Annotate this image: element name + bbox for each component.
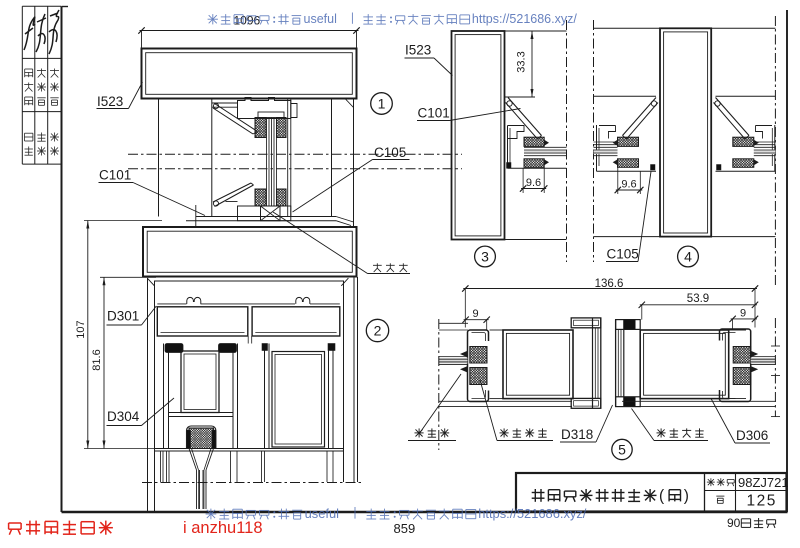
svg-text:i anzhu118: i anzhu118 (183, 519, 263, 537)
svg-text:D304: D304 (107, 409, 140, 424)
svg-text:C105: C105 (607, 247, 639, 262)
svg-text:136.6: 136.6 (595, 278, 624, 290)
svg-text:D301: D301 (107, 309, 139, 324)
svg-text:C101: C101 (99, 168, 131, 183)
svg-text:125: 125 (747, 493, 777, 510)
svg-text:D306: D306 (736, 428, 768, 443)
svg-text:I523: I523 (97, 94, 123, 109)
svg-text:9: 9 (472, 308, 478, 320)
svg-text:90: 90 (727, 516, 741, 530)
svg-text:1: 1 (378, 96, 386, 112)
svg-text:useful: useful (305, 506, 339, 521)
svg-text:859: 859 (394, 521, 416, 536)
svg-text:3: 3 (481, 249, 489, 265)
svg-text:4: 4 (684, 249, 692, 265)
svg-text:33.3: 33.3 (516, 51, 528, 72)
svg-text:useful: useful (304, 12, 337, 26)
svg-text:C101: C101 (418, 106, 450, 121)
svg-text:5: 5 (618, 442, 626, 458)
svg-text:9.6: 9.6 (526, 177, 541, 189)
svg-text:https://521686.xyz/: https://521686.xyz/ (472, 12, 577, 26)
svg-text:2: 2 (374, 323, 382, 339)
svg-text:I523: I523 (405, 43, 431, 58)
svg-text:(: ( (659, 487, 665, 504)
svg-text:D318: D318 (561, 427, 593, 442)
svg-text:81.6: 81.6 (91, 349, 103, 370)
svg-text:9.6: 9.6 (621, 179, 636, 191)
svg-text:98ZJ721: 98ZJ721 (738, 475, 789, 490)
svg-text:C105: C105 (374, 145, 406, 160)
svg-text:107: 107 (75, 320, 87, 338)
svg-text:9: 9 (740, 308, 746, 320)
svg-text:https://521686.xyz/: https://521686.xyz/ (478, 506, 587, 521)
svg-text:): ) (684, 487, 689, 504)
svg-text:53.9: 53.9 (687, 293, 709, 305)
